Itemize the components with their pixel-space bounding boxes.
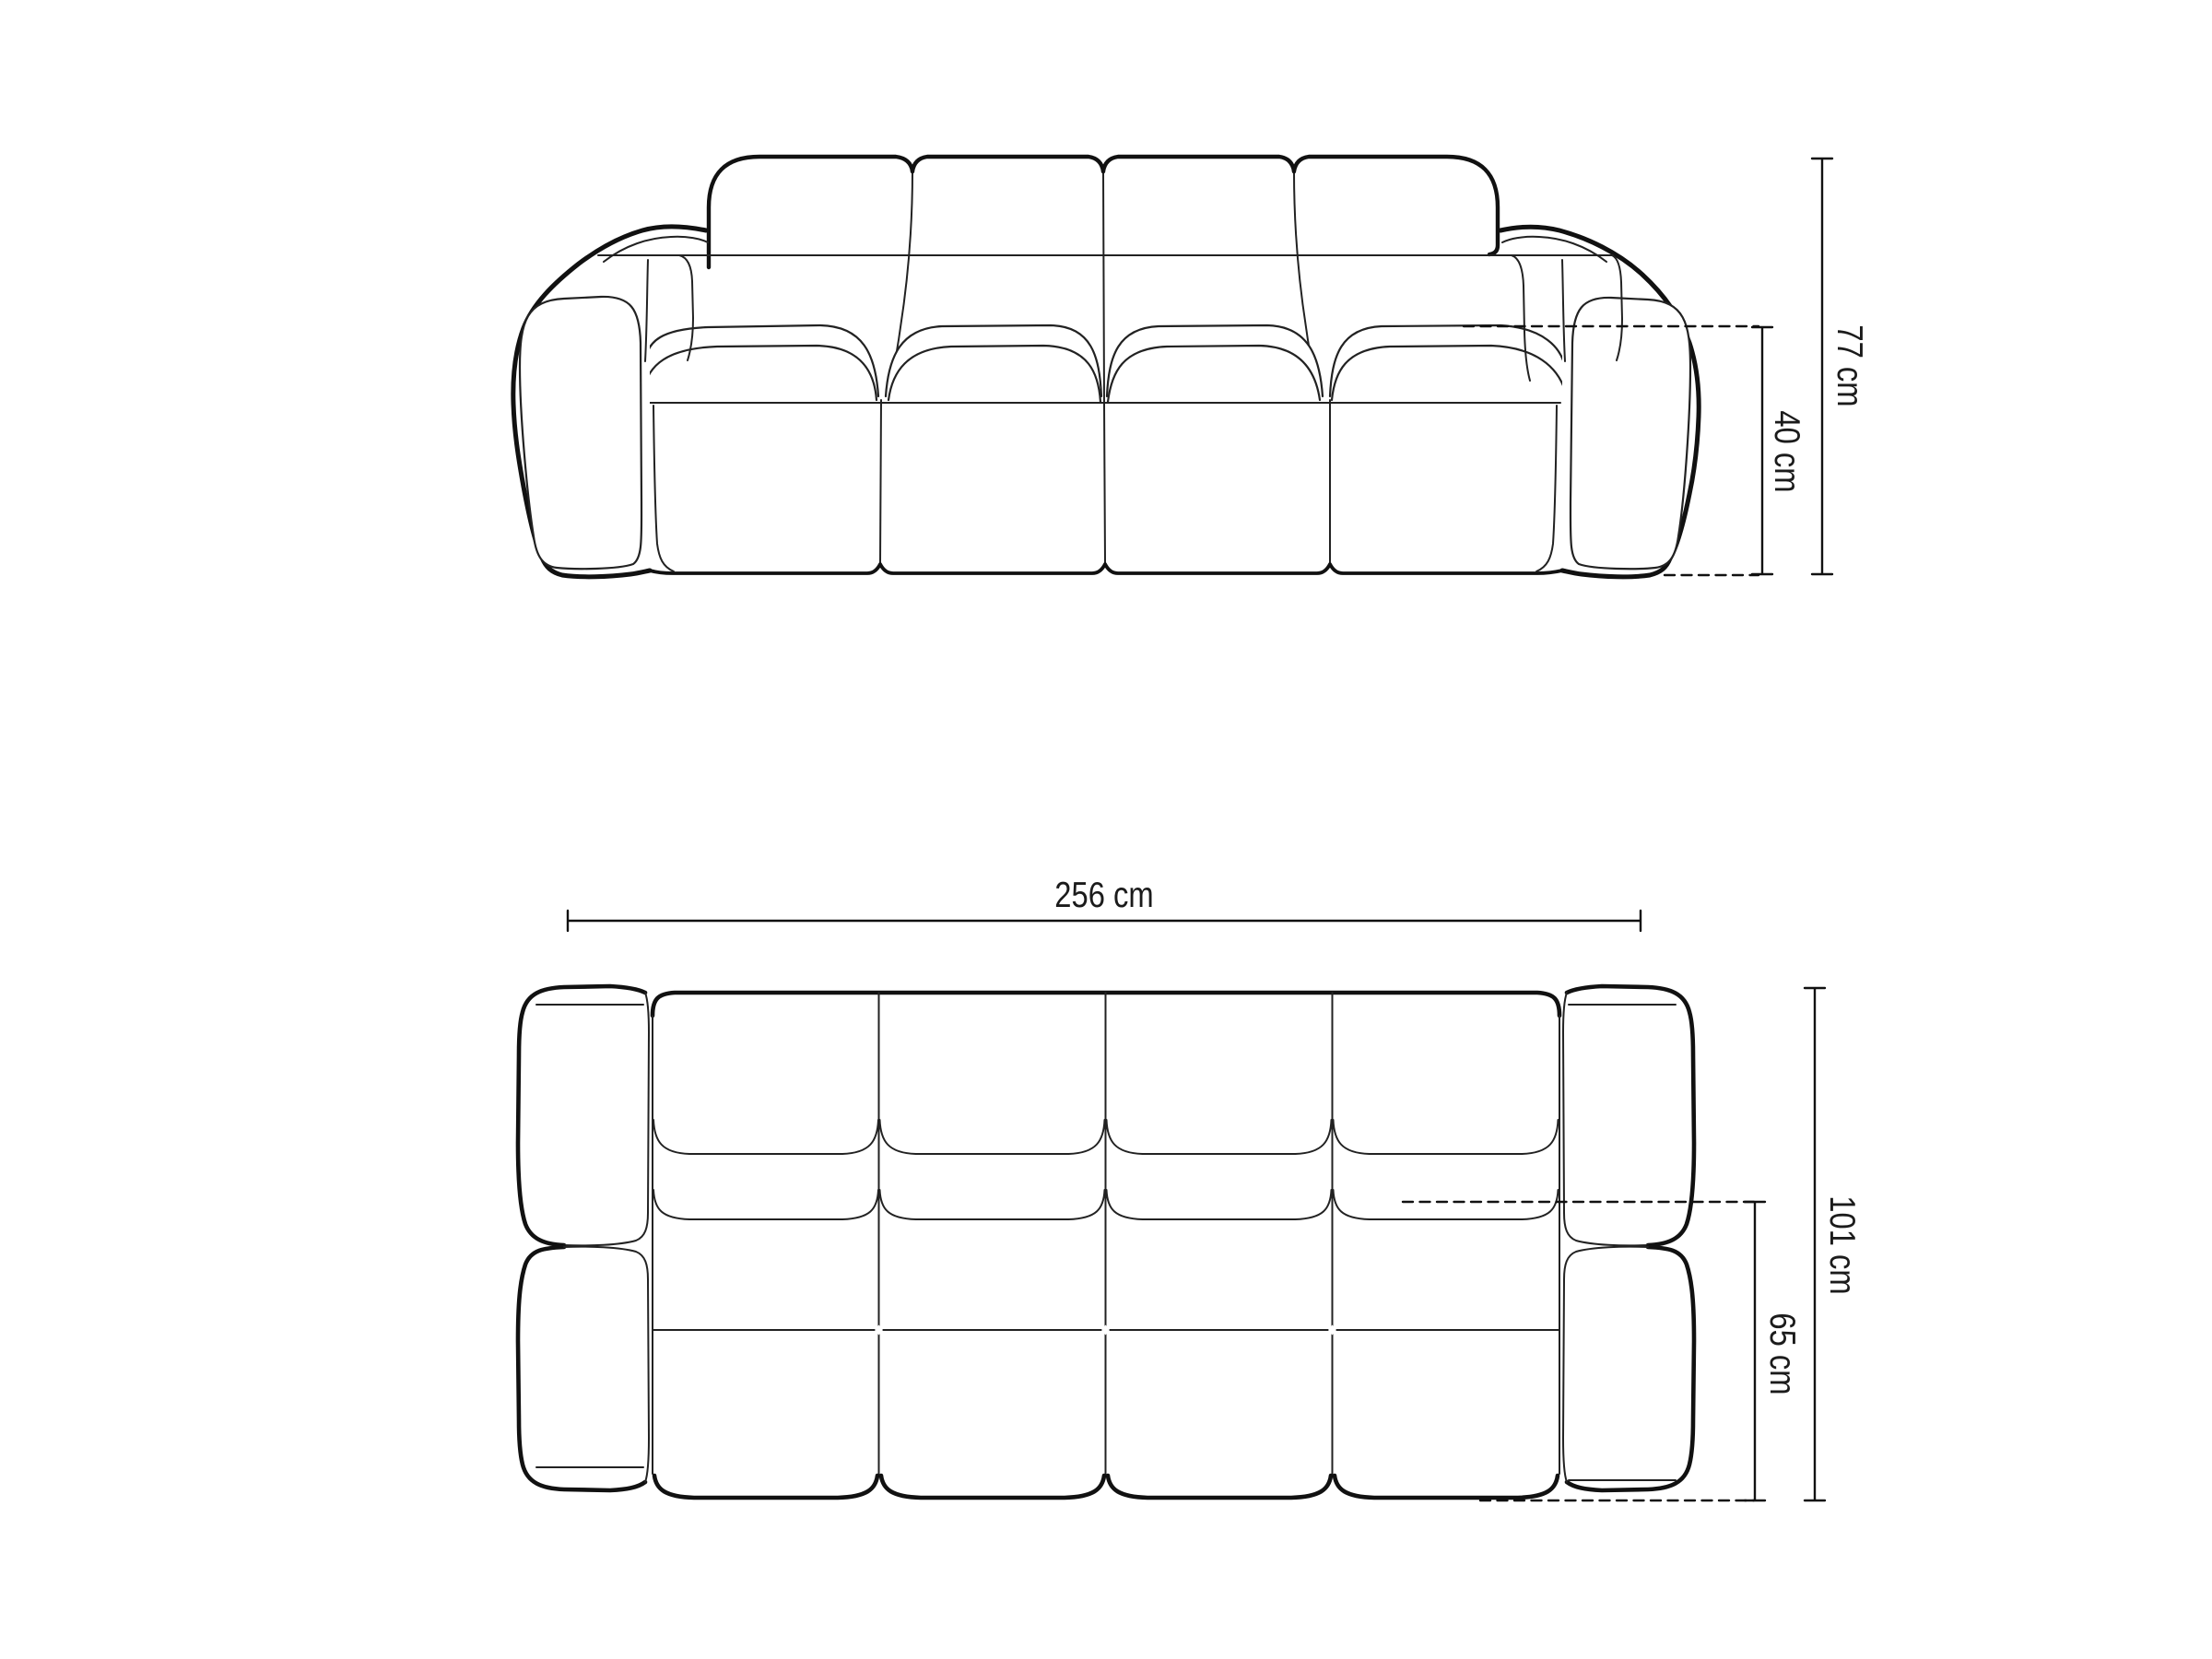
svg-text:40 cm: 40 cm bbox=[1767, 410, 1807, 492]
svg-text:65 cm: 65 cm bbox=[1762, 1312, 1803, 1394]
svg-text:256 cm: 256 cm bbox=[1054, 874, 1153, 914]
svg-text:101 cm: 101 cm bbox=[1822, 1195, 1863, 1294]
svg-text:77 cm: 77 cm bbox=[1830, 324, 1870, 406]
